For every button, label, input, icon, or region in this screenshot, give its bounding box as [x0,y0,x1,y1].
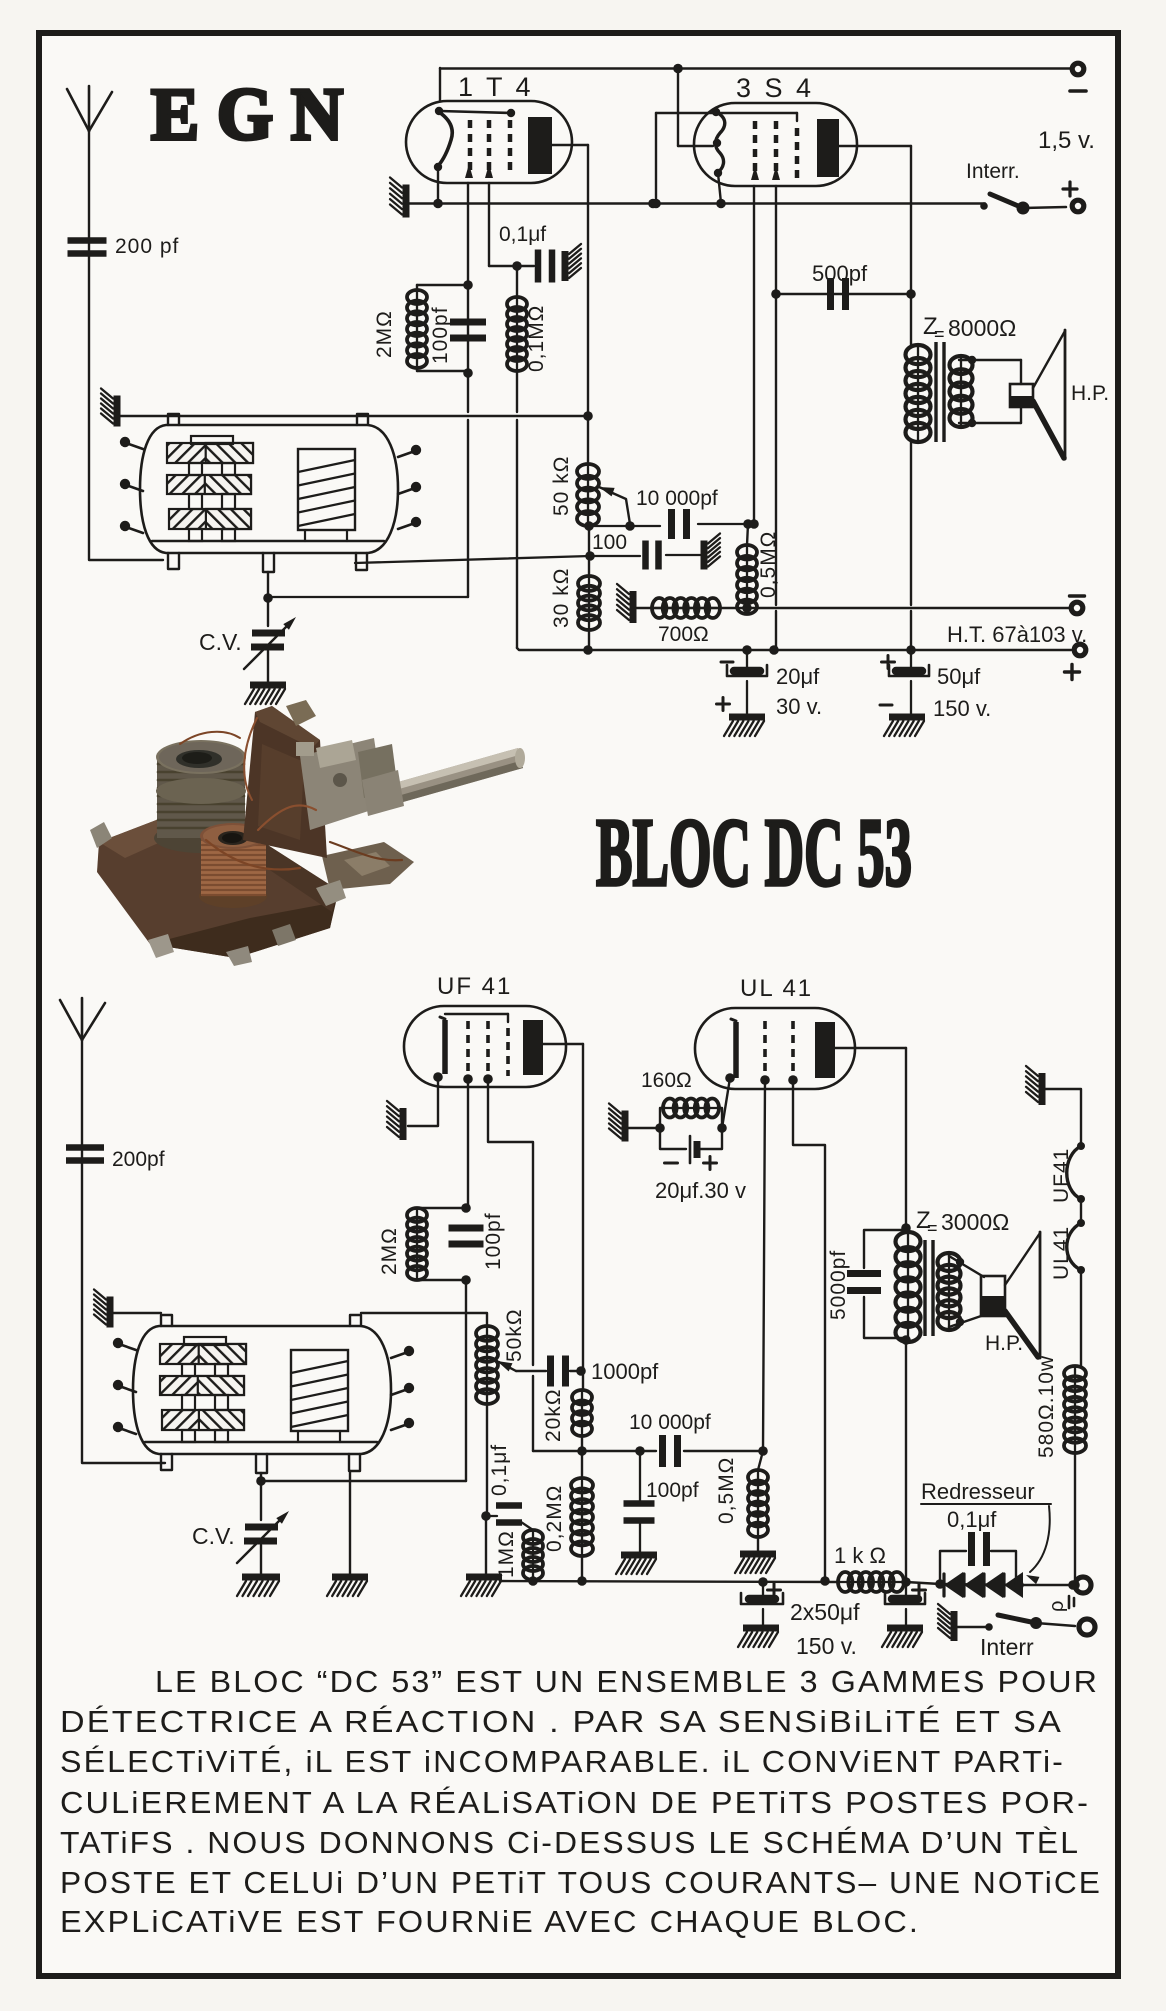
svg-text:TATiFS . NOUS DONNONS Ci-DES: TATiFS . NOUS DONNONS Ci-DESSUS LE SCHÉM… [60,1825,1080,1860]
svg-text:Interr.: Interr. [966,160,1020,183]
svg-text:SÉLECTiViTÉ, iL EST iNCOMPAR: SÉLECTiViTÉ, iL EST iNCOMPARABLE. iL CON… [60,1744,1065,1779]
svg-text:700Ω: 700Ω [658,623,709,646]
svg-text:500pf: 500pf [812,261,868,286]
svg-text:580Ω.10w: 580Ω.10w [1035,1355,1058,1458]
svg-text:50 kΩ: 50 kΩ [550,456,573,516]
svg-text:20μf: 20μf [776,664,820,689]
svg-text:10 000pf: 10 000pf [629,1411,711,1434]
svg-text:UF 41: UF 41 [437,973,512,1000]
svg-text:200pf: 200pf [112,1148,165,1171]
svg-text:100: 100 [592,531,627,554]
svg-text:CULiEREMENT A LA RÉALiSATiO: CULiEREMENT A LA RÉALiSATiON DE PETiTS P… [60,1785,1090,1820]
svg-text:H.P.: H.P. [985,1332,1023,1355]
svg-text:8000Ω: 8000Ω [948,315,1016,341]
svg-text:30 kΩ: 30 kΩ [550,568,573,628]
svg-text:0,5MΩ: 0,5MΩ [715,1457,738,1524]
svg-text:20μf.30 v: 20μf.30 v [655,1178,746,1203]
svg-text:1 k Ω: 1 k Ω [834,1543,886,1568]
svg-text:UL 41: UL 41 [740,975,813,1002]
svg-text:30 v.: 30 v. [776,694,822,719]
svg-text:3000Ω: 3000Ω [941,1209,1009,1235]
svg-text:10 000pf: 10 000pf [636,487,718,510]
svg-text:LE BLOC “DC 53” EST UN ENS: LE BLOC “DC 53” EST UN ENSEMBLE 3 GAMMES… [155,1664,1099,1699]
svg-text:EXPLiCATiVE EST FOURNiE AVE: EXPLiCATiVE EST FOURNiE AVEC CHAQUE BLOC… [60,1904,920,1939]
svg-text:BLOC DC 53: BLOC DC 53 [596,799,912,906]
svg-text:150 v.: 150 v. [933,696,991,721]
svg-text:DÉTECTRICE A RÉACTION . PAR: DÉTECTRICE A RÉACTION . PAR SA SENSiBiLi… [60,1704,1063,1739]
svg-text:0,1μf: 0,1μf [488,1444,511,1496]
svg-text:1000pf: 1000pf [591,1359,659,1384]
svg-text:E G N: E G N [151,74,343,156]
svg-text:100pf: 100pf [482,1212,505,1270]
svg-text:H.T. 67à103 v.: H.T. 67à103 v. [947,622,1087,647]
svg-text:50μf: 50μf [937,664,981,689]
svg-text:=: = [934,324,945,344]
svg-text:160Ω: 160Ω [641,1069,692,1092]
svg-text:Redresseur: Redresseur [921,1479,1035,1504]
svg-text:100pf: 100pf [429,306,452,364]
svg-text:POSTE ET CELUi D’UN PETiT: POSTE ET CELUi D’UN PETiT TOUS COURANTS–… [60,1865,1102,1900]
svg-text:C.V.: C.V. [199,629,242,655]
svg-text:0,1μf: 0,1μf [499,223,546,246]
svg-text:2x50μf: 2x50μf [790,1599,860,1625]
svg-text:UF41: UF41 [1050,1148,1073,1203]
svg-text:0,2MΩ: 0,2MΩ [543,1485,566,1552]
svg-text:0,1μf: 0,1μf [947,1507,997,1532]
svg-text:Interr: Interr [980,1634,1034,1660]
svg-text:3 S 4: 3 S 4 [736,73,814,103]
svg-text:UL41: UL41 [1050,1226,1073,1280]
svg-text:2MΩ: 2MΩ [378,1227,401,1275]
svg-text:C.V.: C.V. [192,1523,235,1549]
svg-text:5000pf: 5000pf [827,1250,850,1320]
svg-text:50kΩ: 50kΩ [503,1308,526,1362]
svg-text:150 v.: 150 v. [796,1633,857,1659]
svg-text:1MΩ: 1MΩ [495,1530,518,1578]
svg-text:0,1MΩ: 0,1MΩ [525,305,548,372]
svg-text:20kΩ: 20kΩ [542,1388,565,1442]
svg-text:2MΩ: 2MΩ [373,310,396,358]
svg-text:ρ: ρ [1046,1601,1068,1612]
svg-text:1,5 v.: 1,5 v. [1038,127,1095,154]
svg-text:=: = [927,1218,938,1238]
svg-text:1 T 4: 1 T 4 [458,72,534,102]
svg-text:200 pf: 200 pf [115,235,179,258]
svg-text:100pf: 100pf [646,1479,699,1502]
svg-text:H.P.: H.P. [1071,382,1109,405]
